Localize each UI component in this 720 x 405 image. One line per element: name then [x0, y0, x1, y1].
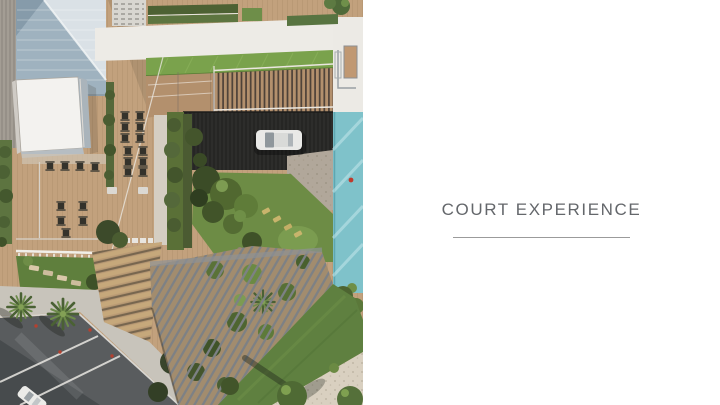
white-building-roof: [12, 77, 98, 158]
caption-panel: COURT EXPERIENCE: [363, 0, 720, 405]
title-underline: [453, 237, 630, 238]
page-title: COURT EXPERIENCE: [442, 200, 642, 220]
striped-walkway: [112, 0, 146, 26]
parked-car: [254, 130, 306, 155]
courtyard-aerial-render: [0, 0, 363, 405]
presentation-slide: COURT EXPERIENCE: [0, 0, 720, 405]
lap-pool: [333, 112, 363, 293]
pool-ladder: [349, 178, 354, 183]
